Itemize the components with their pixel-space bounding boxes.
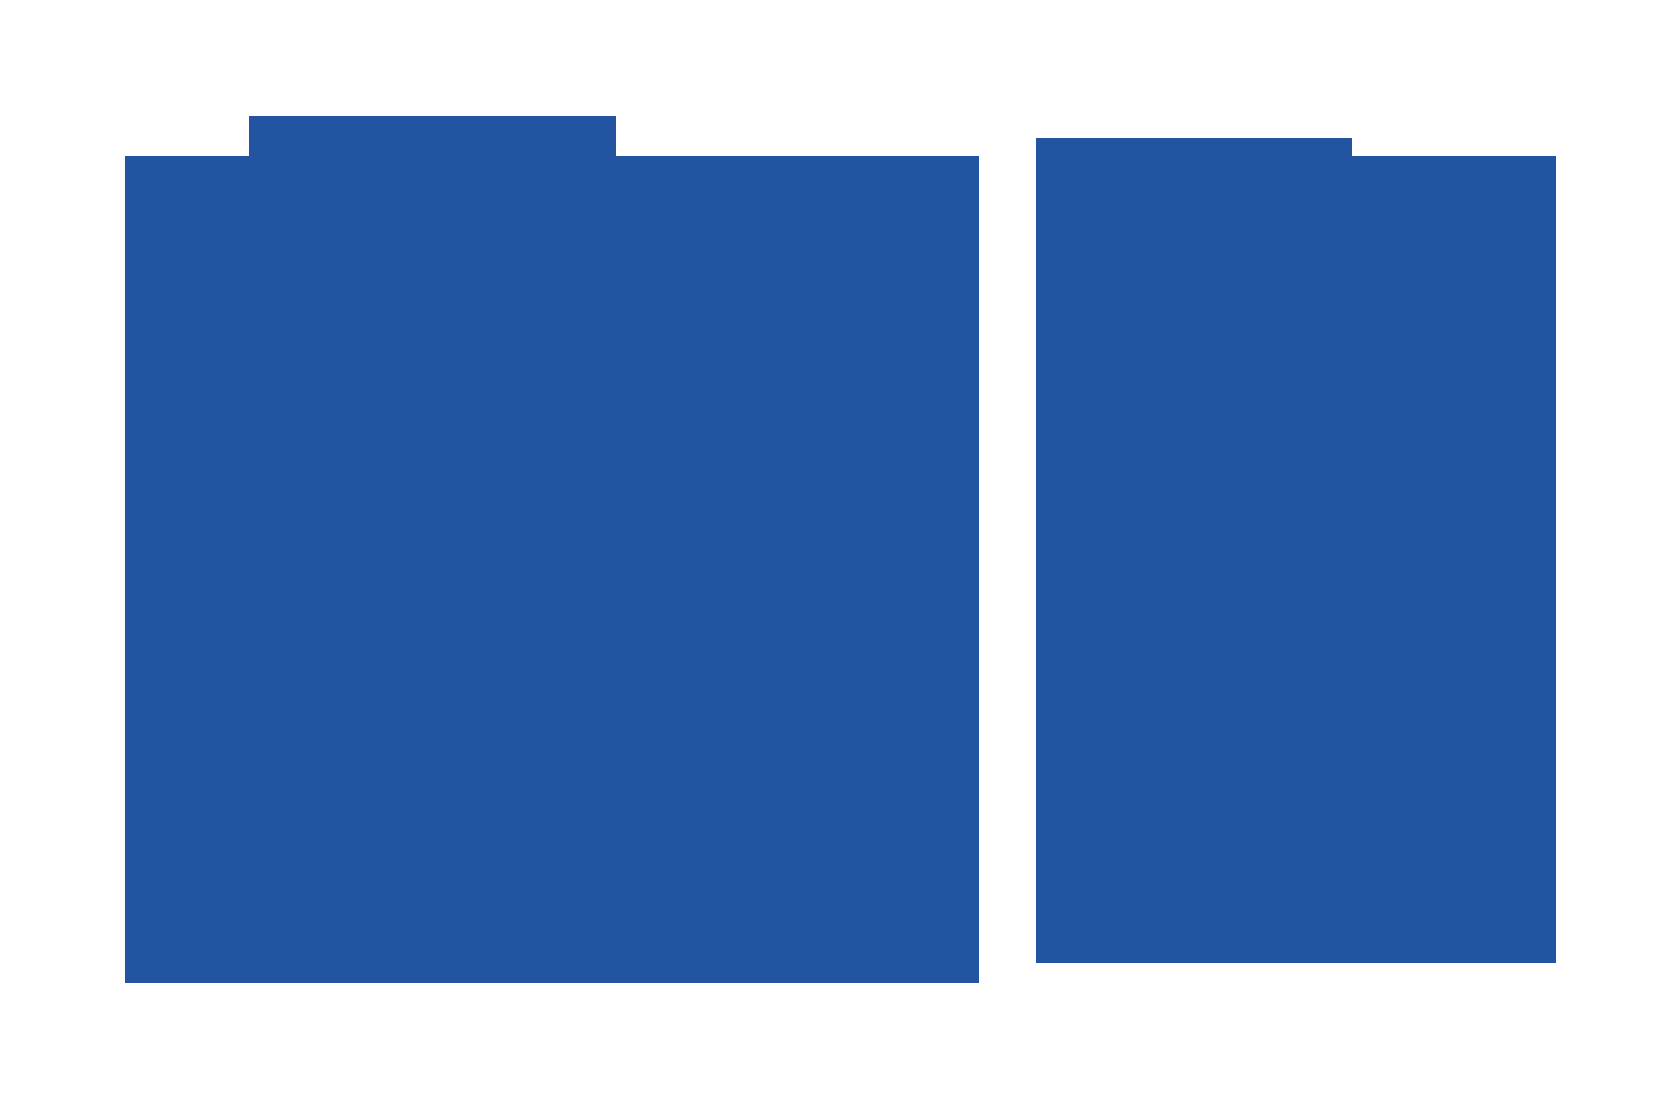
canvas: [0, 0, 1680, 1100]
right-folder-tab: [1036, 138, 1352, 158]
right-folder-body: [1036, 156, 1556, 963]
left-folder-tab: [249, 116, 616, 158]
left-folder-body: [125, 156, 979, 983]
